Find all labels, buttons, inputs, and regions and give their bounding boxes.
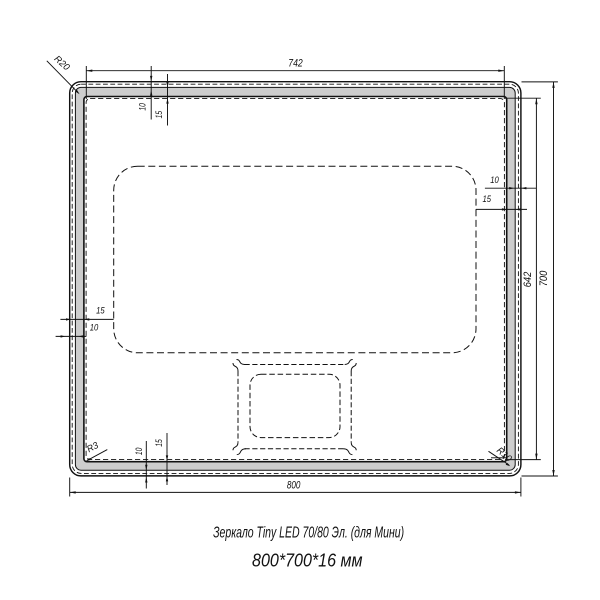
svg-text:15: 15: [154, 439, 165, 447]
svg-text:800: 800: [287, 479, 301, 491]
svg-text:700: 700: [538, 270, 550, 286]
svg-text:800*700*16 мм: 800*700*16 мм: [252, 550, 363, 570]
svg-text:Зеркало Tiny LED 70/80 Эл. (дл: Зеркало Tiny LED 70/80 Эл. (для Мини): [213, 524, 404, 541]
svg-text:10: 10: [490, 175, 499, 186]
svg-text:10: 10: [138, 103, 149, 111]
svg-text:15: 15: [482, 194, 491, 205]
svg-text:10: 10: [90, 323, 99, 334]
svg-text:R3: R3: [85, 440, 101, 455]
svg-text:742: 742: [288, 57, 303, 69]
svg-text:15: 15: [96, 305, 105, 316]
svg-text:642: 642: [522, 272, 534, 288]
svg-text:10: 10: [134, 447, 145, 455]
svg-text:15: 15: [154, 110, 165, 118]
